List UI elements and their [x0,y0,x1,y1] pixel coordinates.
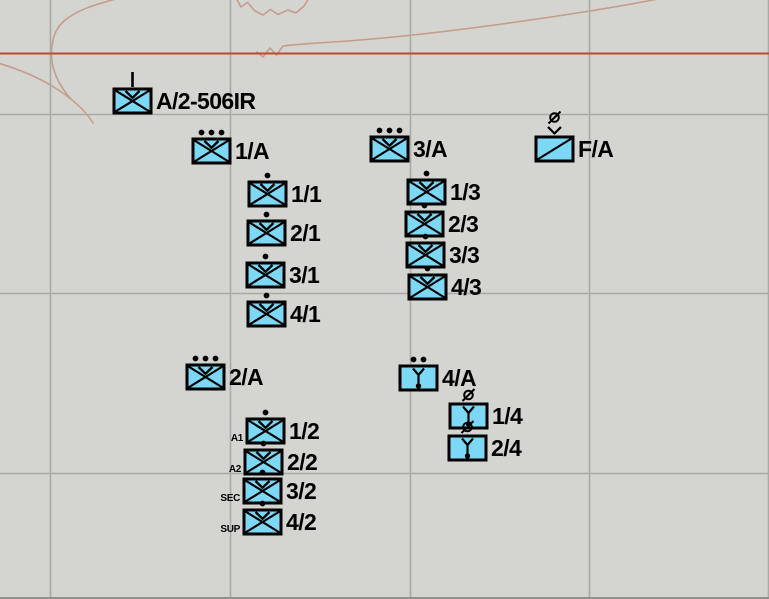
unit-symbol-icon [398,340,439,393]
unit-symbol-icon [369,111,410,164]
echelon-dot [219,130,225,136]
unit-side-label: SEC [211,493,240,504]
echelon-dot [423,234,429,240]
unit-label: 2/A [229,366,263,389]
unit-symbol-icon [185,339,226,392]
unit-side-label: A1 [214,433,243,444]
mortar-icon-base [416,383,421,388]
unit-4-3[interactable]: 4/3 [407,249,481,302]
echelon-dot [397,128,403,134]
echelon-dot [424,171,430,177]
units-layer: A/2-506IR1/A3/AF/A1/12/13/14/11/32/33/34… [0,0,769,599]
echelon-dot [421,357,427,363]
echelon-company-tick [131,72,134,87]
echelon-dot [264,293,270,299]
echelon-dot [411,357,417,363]
unit-symbol-icon [534,111,575,164]
echelon-dot [209,130,215,136]
echelon-dot [199,130,205,136]
unit-symbol-icon [407,249,448,302]
echelon-dot [263,254,269,260]
unit-label: 4/3 [451,276,481,299]
echelon-dot [387,128,393,134]
echelon-dot [422,203,428,209]
unit-symbol-icon [447,410,488,463]
unit-label: 4/1 [290,303,320,326]
echelon-dot [213,356,219,362]
unit-label: F/A [578,138,613,161]
echelon-dot [261,441,267,447]
unit-symbol-icon [112,63,153,116]
unit-symbol-icon [242,484,283,537]
unit-symbol-icon [246,276,287,329]
unit-2-4[interactable]: 2/4 [447,410,521,463]
echelon-dot [264,212,270,218]
echelon-dot [425,266,431,272]
echelon-dot [377,128,383,134]
echelon-dot [193,356,199,362]
mortar-icon-base [465,453,470,458]
unit-label: 2/4 [491,437,521,460]
echelon-dot [203,356,209,362]
unit-label: 4/2 [286,511,316,534]
unit-f-a[interactable]: F/A [534,111,613,164]
air-assault-icon [548,127,561,134]
unit-label: A/2-506IR [156,90,255,113]
echelon-dot [265,173,271,179]
unit-2-a[interactable]: 2/A [185,339,263,392]
unit-a-2-506ir[interactable]: A/2-506IR [112,63,255,116]
unit-side-label: A2 [212,464,241,475]
unit-symbol-icon [191,113,232,166]
unit-4-2[interactable]: 4/2SUP [242,484,316,537]
echelon-dot [260,501,266,507]
unit-side-label: SUP [211,524,240,535]
echelon-dot [263,410,269,416]
echelon-dot [260,470,266,476]
unit-4-1[interactable]: 4/1 [246,276,320,329]
